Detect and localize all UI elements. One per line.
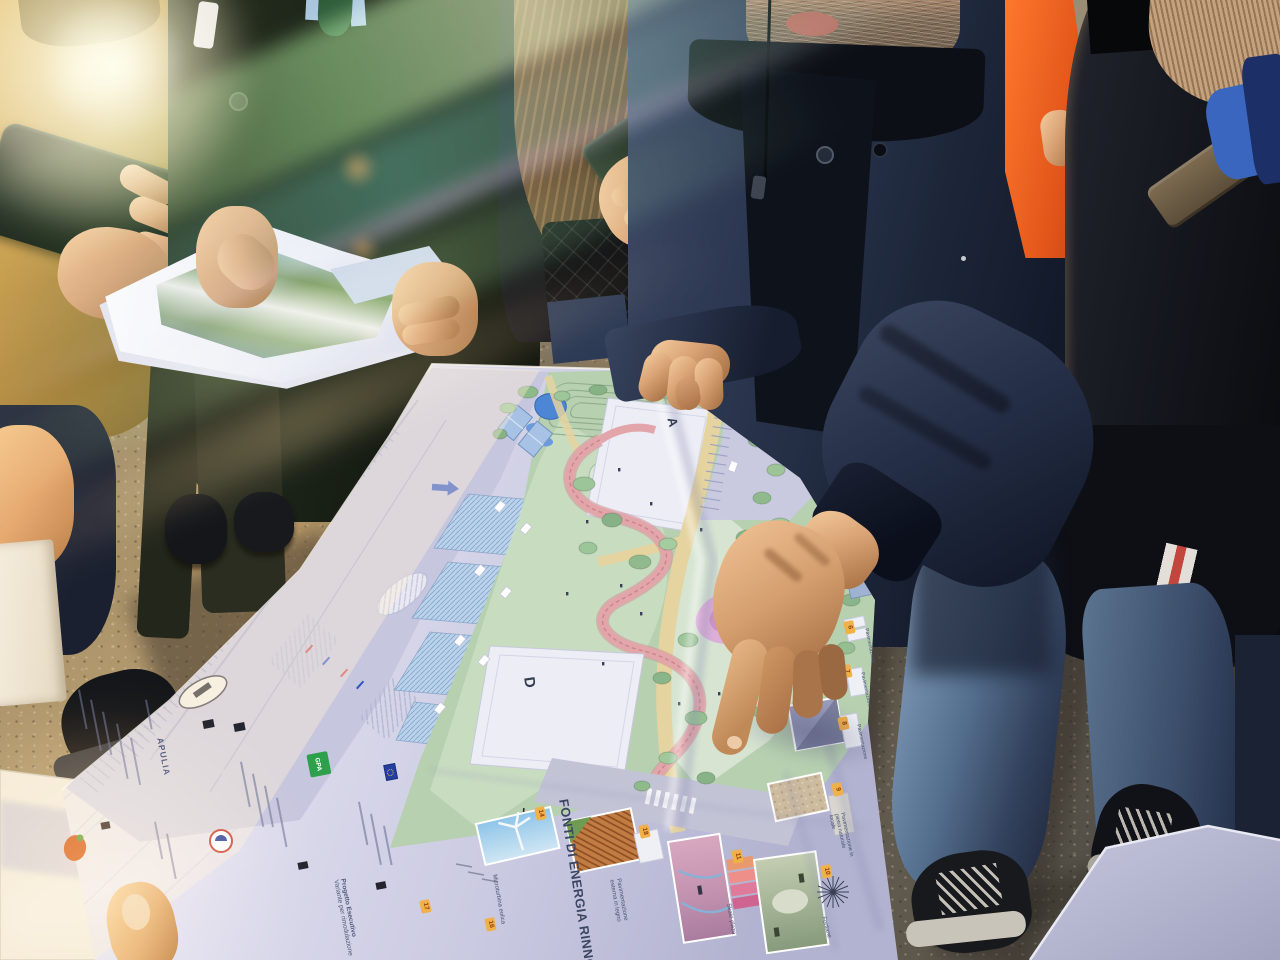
curled-finger — [817, 643, 849, 701]
foreground-hands — [0, 0, 1280, 960]
photo-site-visit-plan-review: A D FONTI DI ENERGIA RINNOVABILI 14 18 1… — [0, 0, 1280, 960]
